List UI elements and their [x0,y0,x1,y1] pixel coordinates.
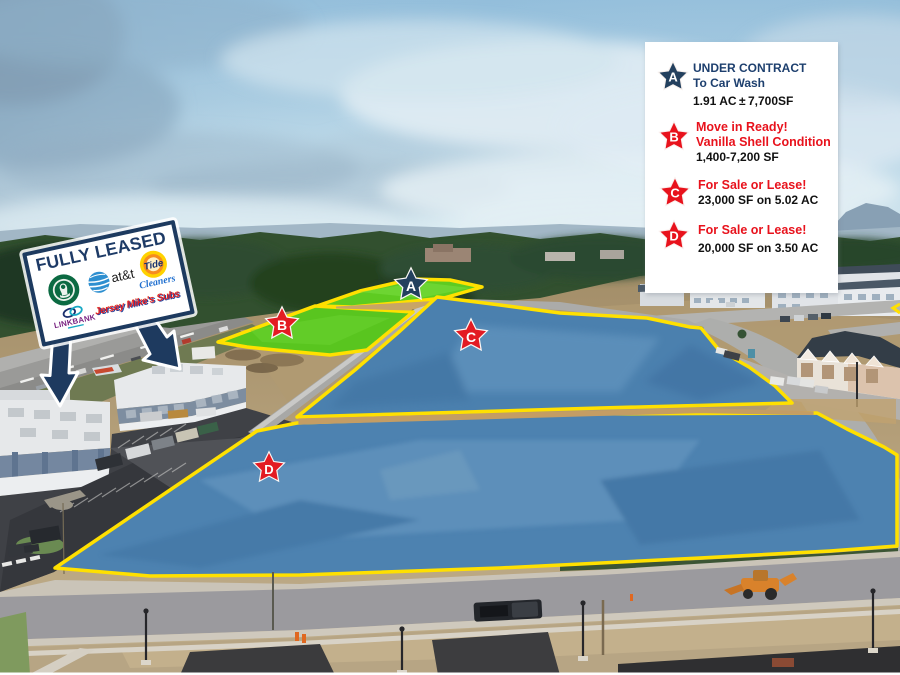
svg-text:B: B [669,130,678,145]
svg-text:B: B [277,317,287,333]
svg-text:C: C [466,329,476,345]
svg-text:A: A [668,70,678,85]
svg-text:D: D [264,462,273,477]
svg-text:C: C [670,186,680,201]
svg-text:D: D [669,229,678,244]
svg-text:A: A [406,278,416,294]
